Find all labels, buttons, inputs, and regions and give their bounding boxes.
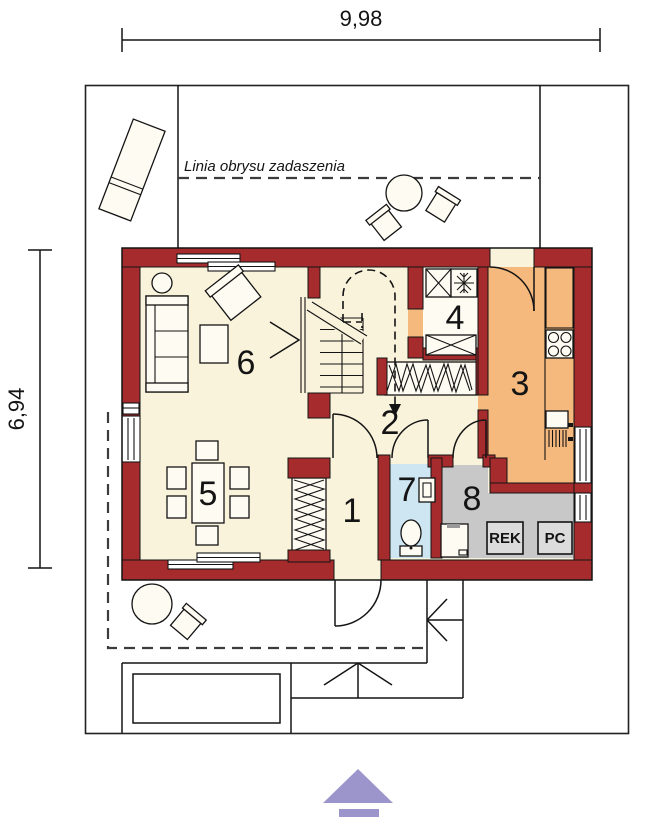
canopy-line-label: Linia obrysu zadaszenia — [184, 158, 345, 175]
dining-chair — [230, 467, 249, 489]
patio-chair — [424, 187, 460, 224]
dimension-top: 9,98 — [122, 6, 600, 52]
entrance-arrow-icon — [323, 769, 393, 817]
dining-chair — [230, 496, 249, 518]
sofa — [146, 296, 188, 392]
entry-arrow-up-icon — [324, 663, 392, 698]
patio-table — [386, 175, 422, 211]
dimension-left: 6,94 — [4, 250, 52, 568]
floor-plan-page: 9,98 6,94 Linia obrysu zadaszenia — [0, 0, 647, 825]
garden-lounger — [99, 119, 165, 221]
floor-kitchen — [488, 267, 574, 483]
dining-chair — [196, 526, 218, 545]
side-table — [152, 273, 172, 293]
window-right-wall — [575, 427, 591, 522]
utility-fittings: REK PC — [441, 522, 572, 557]
room-number-5: 5 — [199, 475, 218, 513]
room-number-7: 7 — [398, 471, 417, 509]
entry-arrow-left-icon — [427, 599, 463, 641]
coffee-table — [200, 325, 228, 363]
window-left-wall — [122, 403, 140, 462]
dining-chair — [196, 441, 218, 460]
toilet — [400, 520, 422, 556]
wardrobe-hatch — [292, 478, 326, 552]
room-number-6: 6 — [237, 344, 256, 382]
pc-label: PC — [545, 530, 566, 547]
room-number-4: 4 — [446, 299, 465, 337]
room-number-8: 8 — [463, 480, 482, 518]
patio-table-set-top — [366, 175, 461, 242]
rek-label: REK — [489, 530, 521, 547]
kitchen-doorway-floor — [478, 395, 488, 411]
building: REK PC — [122, 248, 592, 626]
boiler — [441, 524, 468, 557]
dimension-label-height: 6,94 — [4, 388, 29, 431]
kitchen-doorway-floor — [408, 307, 423, 338]
dimension-label-width: 9,98 — [340, 6, 383, 31]
dining-chair — [167, 496, 186, 518]
dining-chair — [167, 467, 186, 489]
stove — [546, 330, 573, 358]
patio-table — [132, 584, 172, 624]
room-number-1: 1 — [343, 492, 362, 530]
patio-chair — [169, 603, 206, 640]
door-main-entrance — [335, 580, 381, 626]
room-number-3: 3 — [511, 365, 530, 403]
snowflake-glyph — [454, 273, 474, 293]
patio-table-set-bottom — [132, 584, 206, 641]
washbasin — [419, 478, 435, 502]
floor-plan-drawing: 9,98 6,94 Linia obrysu zadaszenia — [0, 0, 647, 825]
room-number-2: 2 — [381, 404, 400, 442]
closet-hatch — [385, 362, 477, 395]
